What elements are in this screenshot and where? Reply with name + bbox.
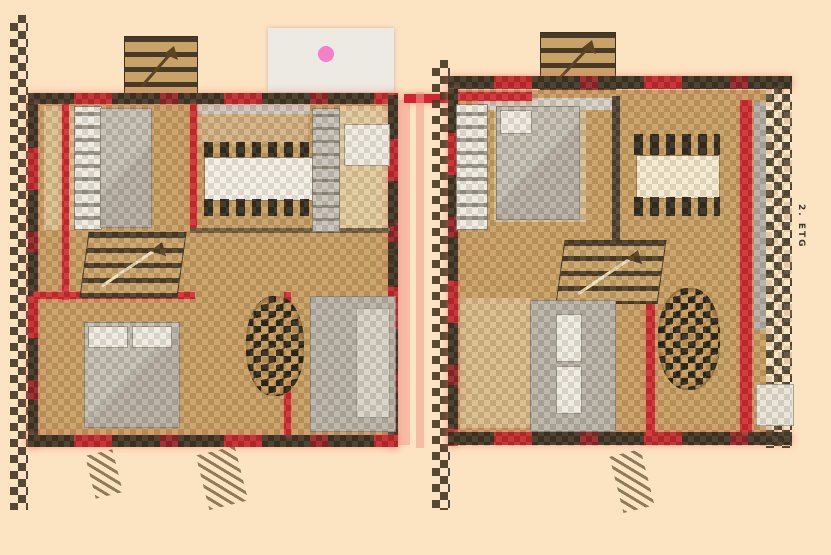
floor-label-left-text: 1. ETG — [386, 222, 396, 267]
dining-table — [204, 157, 314, 201]
bed-frame-inset — [556, 314, 582, 362]
pillow — [500, 110, 532, 134]
plant-scribble — [196, 446, 248, 510]
pillow — [132, 326, 172, 348]
stairs-arrow-icon — [134, 42, 184, 90]
wall-top — [28, 93, 398, 104]
wall-bottom — [28, 435, 398, 447]
plant-scribble — [609, 449, 654, 513]
dining-chairs-bottom — [204, 199, 312, 216]
dining-chairs-top — [634, 134, 720, 155]
terrace-table — [318, 46, 334, 62]
partition-lower — [646, 288, 655, 434]
floor-label-right-text: 2. ETG — [796, 204, 806, 249]
partition-gray-strip — [754, 102, 766, 330]
floorplan-left: 1. ETG — [0, 0, 420, 555]
wardrobe — [456, 104, 488, 230]
floor-label-left: 1. ETG — [386, 222, 396, 284]
lower-room-floor-patch — [460, 298, 530, 428]
partition-kitchen — [190, 228, 390, 233]
sofa-cushion — [356, 308, 390, 418]
partition-main-red — [740, 100, 752, 432]
left-hatched-wall-strip — [10, 15, 28, 510]
bed-frame-inset — [556, 366, 582, 414]
floorplan-right: 2. ETG — [410, 0, 831, 555]
dining-table — [636, 155, 720, 199]
kitchen-appliance — [344, 124, 390, 166]
wall-right-shadow — [398, 100, 410, 445]
plant-or-stove — [246, 296, 304, 396]
wall-left-shadow — [416, 92, 424, 448]
dining-chairs-top — [204, 142, 312, 157]
floor-label-right: 2. ETG — [796, 204, 806, 272]
plant-scribble — [85, 449, 123, 498]
kitchen-counter — [312, 108, 340, 232]
corner-fixture — [756, 384, 794, 426]
stairs-arrow-icon — [570, 244, 650, 300]
wardrobe — [74, 106, 102, 230]
headboard-band — [198, 104, 310, 114]
dining-chairs-bottom — [634, 197, 720, 216]
wall-top — [448, 76, 792, 89]
partition-dining — [190, 104, 197, 232]
wall-left — [28, 104, 38, 447]
stairs-arrow-icon — [96, 236, 172, 292]
plant-or-stove — [658, 288, 720, 390]
wall-top-red-segment — [448, 92, 532, 101]
bed-top — [100, 108, 152, 228]
wall-bottom — [448, 432, 792, 445]
pillow — [88, 326, 128, 348]
partition-bedroom — [62, 104, 69, 300]
